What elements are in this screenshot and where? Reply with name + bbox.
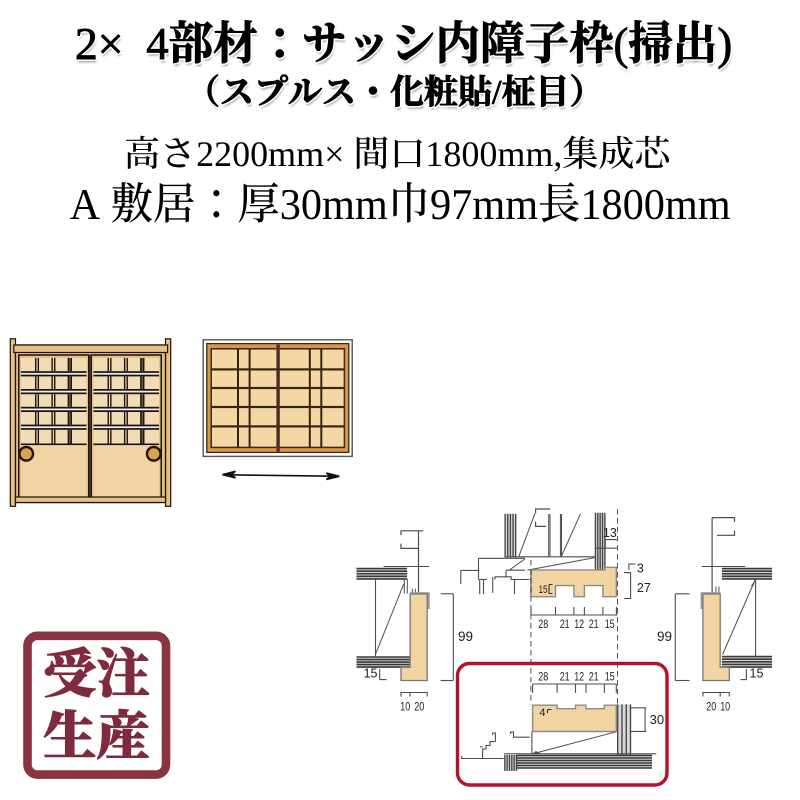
svg-text:20: 20 bbox=[706, 700, 716, 714]
svg-text:12: 12 bbox=[574, 617, 584, 631]
svg-text:28: 28 bbox=[538, 617, 548, 631]
svg-text:21: 21 bbox=[589, 670, 599, 684]
svg-text:15: 15 bbox=[364, 667, 378, 681]
svg-text:27: 27 bbox=[637, 581, 651, 595]
svg-text:21: 21 bbox=[560, 670, 570, 684]
svg-text:15: 15 bbox=[750, 667, 764, 681]
svg-text:21: 21 bbox=[589, 617, 599, 631]
svg-text:21: 21 bbox=[560, 617, 570, 631]
svg-text:20: 20 bbox=[414, 700, 424, 714]
svg-text:99: 99 bbox=[458, 629, 473, 644]
svg-text:15: 15 bbox=[539, 584, 548, 596]
svg-text:10: 10 bbox=[400, 700, 410, 714]
svg-text:4: 4 bbox=[539, 707, 545, 719]
svg-text:3: 3 bbox=[637, 562, 644, 576]
svg-text:12: 12 bbox=[574, 670, 584, 684]
svg-text:10: 10 bbox=[720, 700, 730, 714]
svg-text:15: 15 bbox=[605, 617, 615, 631]
svg-text:30: 30 bbox=[650, 712, 664, 727]
svg-text:13: 13 bbox=[603, 526, 617, 540]
svg-text:99: 99 bbox=[657, 629, 672, 644]
svg-text:28: 28 bbox=[538, 670, 548, 684]
svg-text:15: 15 bbox=[605, 670, 615, 684]
